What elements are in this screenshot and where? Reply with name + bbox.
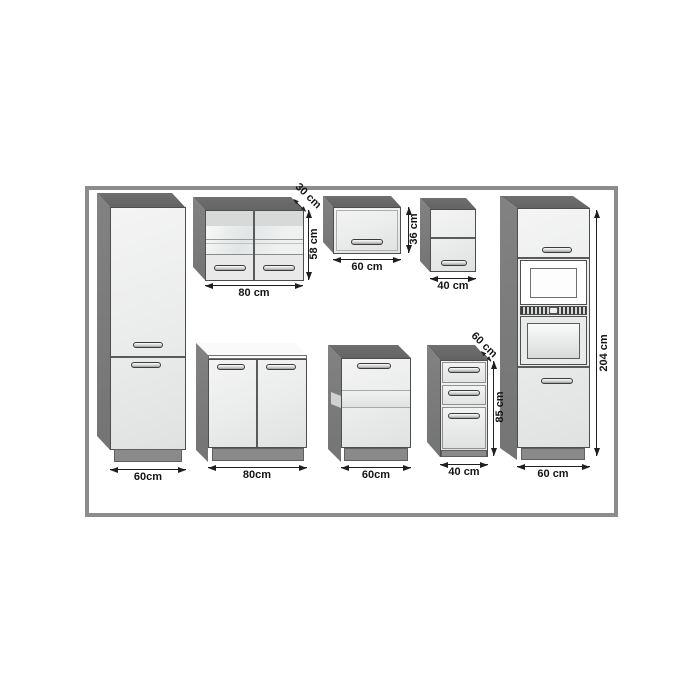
door-handle [263,265,295,271]
drawer-handle [448,413,480,419]
width-dimension-line [333,259,401,260]
door-split-line [431,237,475,239]
door-split-line [253,210,255,280]
cabinet-top-panel [323,196,401,207]
door-handle [441,260,467,266]
cabinet-top-panel [328,345,411,358]
width-dimension-label: 80cm [243,469,271,481]
oven-window [527,323,580,359]
cabinet-side-panel [427,345,440,457]
width-dimension-line [208,467,307,468]
cabinet-side-panel [420,198,430,272]
cabinet-front [110,207,186,450]
door-handle [266,364,296,370]
width-dimension-label: 60 cm [537,468,568,480]
drawer-handle [448,390,480,396]
width-dimension-line [110,469,186,470]
cabinet-top-panel [97,193,185,207]
height-dimension-label: 204 cm [598,334,610,371]
cabinet-plinth [521,448,585,460]
bottom-door-split-line [518,366,589,368]
height-dimension-line [596,210,597,456]
door-handle [351,239,383,245]
shelf-band [342,390,410,408]
microwave-niche-inner [530,268,577,298]
width-dimension-label: 60 cm [351,261,382,273]
worktop [196,343,307,355]
door-split-line [111,356,185,358]
cabinet-side-panel [97,193,110,450]
width-dimension-line [517,466,590,467]
width-dimension-line [440,464,488,465]
door-handle [214,265,246,271]
cabinet-side-panel [196,343,208,462]
width-dimension-label: 80 cm [238,287,269,299]
height-dimension-label: 36 cm [408,213,420,244]
cabinet-top-panel [193,197,303,210]
height-dimension-label: 85 cm [494,391,506,422]
drawer-handle [448,367,480,373]
door-handle [542,247,572,253]
cabinet-side-panel [193,197,205,280]
top-door-split-line [518,257,589,259]
door-handle [133,342,163,348]
width-dimension-label: 60cm [362,469,390,481]
cabinet-plinth [441,450,487,457]
cabinet-plinth [114,449,182,462]
cabinet-plinth [212,448,304,461]
door-handle [131,362,161,368]
width-dimension-label: 40 cm [448,466,479,478]
door-split-line [256,360,258,447]
width-dimension-line [430,278,476,279]
door-handle [541,378,573,384]
kitchen-dimension-diagram: 60cm 80 cm 58 cm 30 cm 60 cm 36 cm [0,0,700,700]
oven-control-knob [549,307,558,314]
door-handle [357,363,391,369]
width-dimension-label: 60cm [134,471,162,483]
height-dimension-label: 58 cm [308,228,320,259]
width-dimension-label: 40 cm [437,280,468,292]
cabinet-plinth [344,448,408,461]
width-dimension-line [341,467,411,468]
door-handle [217,364,245,370]
width-dimension-line [205,285,303,286]
